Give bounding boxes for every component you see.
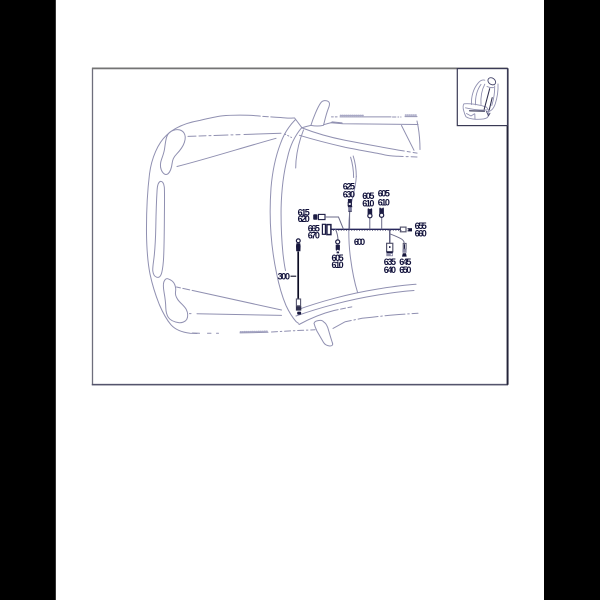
svg-text:610: 610 — [362, 198, 374, 208]
svg-text:650: 650 — [399, 265, 411, 275]
svg-text:620: 620 — [298, 214, 310, 224]
svg-text:300: 300 — [278, 271, 290, 281]
svg-text:670: 670 — [308, 231, 320, 241]
svg-text:640: 640 — [384, 265, 396, 275]
svg-text:600: 600 — [354, 237, 365, 247]
svg-text:610: 610 — [378, 197, 390, 207]
svg-text:660: 660 — [415, 229, 427, 239]
svg-text:610: 610 — [332, 260, 344, 270]
svg-text:630: 630 — [343, 190, 355, 200]
